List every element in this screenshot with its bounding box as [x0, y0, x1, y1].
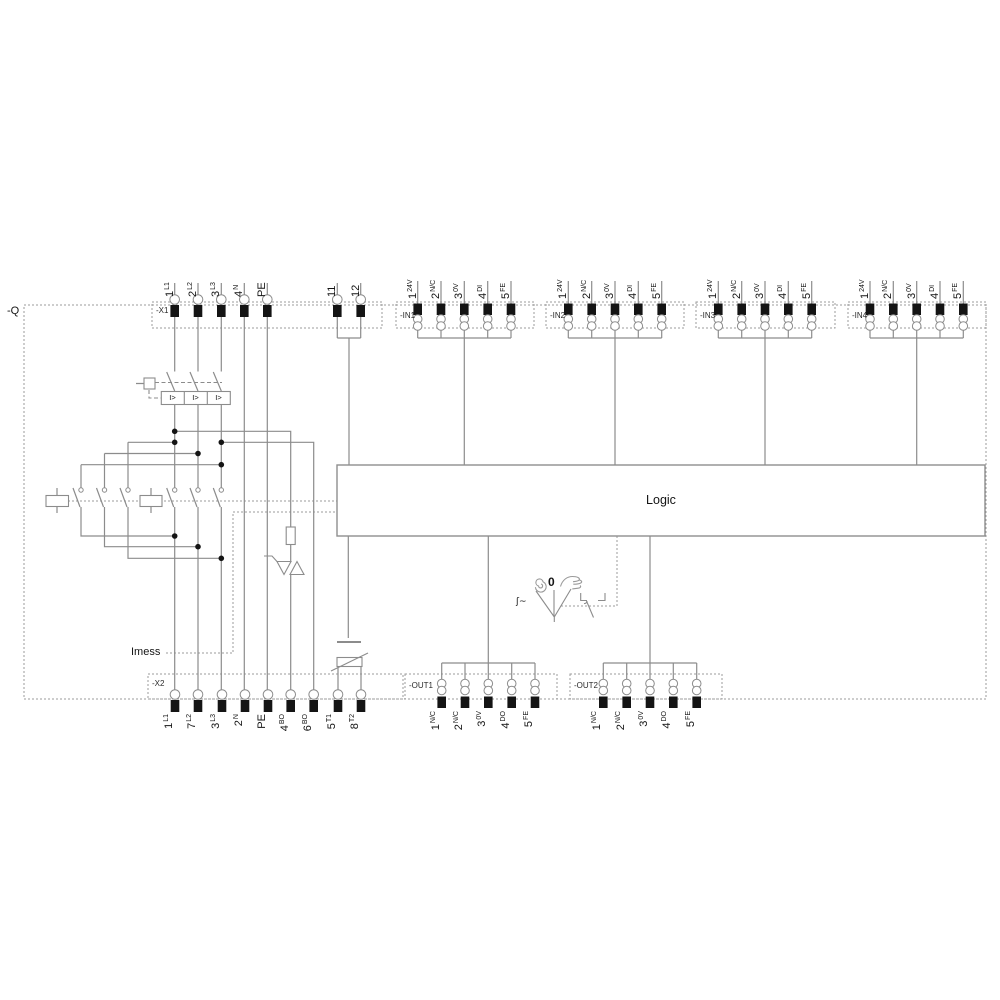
- terminal-label: 2N/C: [731, 280, 743, 299]
- terminal-circle-icon: [599, 686, 608, 695]
- terminal-label: 5FE: [500, 283, 512, 299]
- terminal-circle-icon: [531, 686, 540, 695]
- terminal-pin-icon: [217, 305, 226, 317]
- terminal-label: 5FE: [801, 283, 813, 299]
- terminal-pin-icon: [587, 304, 596, 316]
- terminal-label: 11: [326, 286, 338, 297]
- breaker-actuator-icon: [144, 378, 155, 389]
- terminal-label: 4BO: [279, 714, 291, 731]
- terminal-label: 124V: [707, 279, 719, 299]
- terminal-label: 4DI: [929, 285, 941, 299]
- terminal-label: 1L1: [163, 714, 175, 729]
- terminal-pin-icon: [437, 697, 446, 709]
- terminal-pin-icon: [286, 700, 295, 712]
- terminal-circle-icon: [263, 690, 273, 700]
- terminal-label: 5FE: [952, 283, 964, 299]
- terminal-circle-icon: [356, 690, 366, 700]
- selector-zero-label: 0: [548, 575, 555, 589]
- terminal-pin-icon: [634, 304, 643, 316]
- terminal-pin-icon: [461, 697, 470, 709]
- terminal-circle-icon: [193, 690, 203, 700]
- device-designation-label: -Q: [7, 305, 19, 317]
- terminal-label: 124V: [859, 279, 871, 299]
- terminal-label: 3L3: [210, 282, 222, 297]
- terminal-label: 1L1: [164, 282, 176, 297]
- terminal-label: 12: [350, 285, 362, 297]
- terminal-label: 7L2: [186, 714, 198, 729]
- terminal-pin-icon: [357, 700, 366, 712]
- terminal-circle-icon: [714, 322, 723, 331]
- terminal-pin-icon: [484, 697, 493, 709]
- terminal-pin-icon: [599, 697, 608, 709]
- in-block-label: -IN1: [400, 311, 415, 320]
- fuse-icon: [286, 527, 295, 545]
- terminal-pin-icon: [194, 305, 203, 317]
- terminal-circle-icon: [622, 686, 631, 695]
- logic-label: Logic: [337, 465, 985, 536]
- terminal-label: PE: [256, 282, 268, 297]
- terminal-label: 30V: [453, 283, 465, 299]
- terminal-label: 5FE: [685, 711, 697, 727]
- triac-icon: [264, 556, 304, 575]
- terminal-pin-icon: [194, 700, 203, 712]
- imess-link: [166, 512, 337, 653]
- terminal-pin-icon: [507, 697, 516, 709]
- terminal-circle-icon: [737, 322, 746, 331]
- terminal-pin-icon: [784, 304, 793, 316]
- x1-label: -X1: [156, 306, 168, 315]
- terminal-circle-icon: [461, 686, 470, 695]
- terminal-circle-icon: [564, 322, 573, 331]
- terminal-circle-icon: [507, 686, 516, 695]
- terminal-pin-icon: [669, 697, 678, 709]
- terminal-circle-icon: [240, 690, 250, 700]
- terminal-label: 5FE: [651, 283, 663, 299]
- trip-unit-cell: I>: [161, 393, 184, 402]
- terminal-label: 3L3: [210, 714, 222, 729]
- terminal-label: 4N: [233, 285, 245, 297]
- terminal-circle-icon: [217, 690, 227, 700]
- schematic-canvas: -Q Logic Imess I> I> I> 0 ʃ~ 1L12L23L34N…: [0, 0, 1000, 1000]
- terminal-label: 30V: [638, 711, 650, 727]
- selector-logic-link: [560, 536, 617, 606]
- terminal-circle-icon: [692, 686, 701, 695]
- terminal-label: 5T1: [326, 714, 338, 729]
- terminal-circle-icon: [912, 322, 921, 331]
- out-block-label: -OUT1: [409, 681, 433, 690]
- terminal-circle-icon: [483, 322, 492, 331]
- terminal-pin-icon: [692, 697, 701, 709]
- x2-label: -X2: [152, 679, 164, 688]
- terminal-pin-icon: [657, 304, 666, 316]
- contactor-coil-2-icon: [140, 496, 162, 507]
- terminal-pin-icon: [263, 305, 272, 317]
- terminal-circle-icon: [634, 322, 643, 331]
- terminal-circle-icon: [889, 322, 898, 331]
- terminal-pin-icon: [622, 697, 631, 709]
- terminal-circle-icon: [437, 322, 446, 331]
- terminal-circle-icon: [507, 322, 516, 331]
- terminal-circle-icon: [170, 690, 180, 700]
- terminal-pin-icon: [761, 304, 770, 316]
- selector-contact-icon: [581, 593, 605, 618]
- terminal-circle-icon: [611, 322, 620, 331]
- terminal-label: 8T2: [349, 714, 361, 729]
- terminal-circle-icon: [484, 686, 493, 695]
- terminal-pin-icon: [531, 697, 540, 709]
- terminal-pin-icon: [171, 700, 180, 712]
- terminal-pin-icon: [333, 305, 342, 317]
- in-block-label: -IN3: [700, 311, 715, 320]
- terminal-pin-icon: [807, 304, 816, 316]
- terminal-label: 4DO: [500, 711, 512, 729]
- terminal-label: 6BO: [302, 714, 314, 731]
- mode-selector-icon: [535, 577, 605, 623]
- terminal-pin-icon: [714, 304, 723, 316]
- trip-unit-cell: I>: [207, 393, 230, 402]
- terminal-label: 2L2: [187, 282, 199, 297]
- terminal-circle-icon: [587, 322, 596, 331]
- terminal-label: 30V: [754, 283, 766, 299]
- terminal-label: 2N/C: [615, 711, 627, 730]
- terminal-label: 4DI: [777, 285, 789, 299]
- terminal-pin-icon: [507, 304, 516, 316]
- terminal-circle-icon: [866, 322, 875, 331]
- terminal-pin-icon: [334, 700, 343, 712]
- terminal-circle-icon: [309, 690, 319, 700]
- terminal-pin-icon: [611, 304, 620, 316]
- manual-hand-icon: [561, 577, 582, 589]
- terminal-label: 4DI: [627, 285, 639, 299]
- terminal-label: 124V: [407, 279, 419, 299]
- terminal-pin-icon: [240, 305, 249, 317]
- symbols: [46, 378, 362, 667]
- terminal-pin-icon: [959, 304, 968, 316]
- terminal-label: 2N/C: [453, 711, 465, 730]
- terminal-pin-icon: [936, 304, 945, 316]
- terminal-pin-icon: [737, 304, 746, 316]
- terminal-label: 4DI: [477, 285, 489, 299]
- terminal-pin-icon: [309, 700, 318, 712]
- terminal-circle-icon: [646, 686, 655, 695]
- terminal-pin-icon: [460, 304, 469, 316]
- terminal-pin-icon: [889, 304, 898, 316]
- terminal-circle-icon: [437, 686, 446, 695]
- terminal-circle-icon: [784, 322, 793, 331]
- terminal-label: 124V: [557, 279, 569, 299]
- terminal-pin-icon: [437, 304, 446, 316]
- terminal-circle-icon: [959, 322, 968, 331]
- terminal-label: 30V: [906, 283, 918, 299]
- terminal-label: 30V: [604, 283, 616, 299]
- terminal-pin-icon: [218, 700, 227, 712]
- terminal-circle-icon: [286, 690, 296, 700]
- wires: [57, 283, 361, 690]
- terminal-label: 2N/C: [581, 280, 593, 299]
- terminal-label: 1N/C: [430, 711, 442, 730]
- terminal-pin-icon: [241, 700, 250, 712]
- terminal-circle-icon: [761, 322, 770, 331]
- contactor-coil-1-icon: [46, 496, 69, 507]
- in-block-label: -IN2: [550, 311, 565, 320]
- terminal-label: PE: [256, 714, 268, 729]
- terminal-label: 2N: [233, 714, 245, 726]
- terminal-pin-icon: [170, 305, 179, 317]
- terminal-circle-icon: [333, 690, 343, 700]
- terminal-pin-icon: [646, 697, 655, 709]
- terminal-pin-icon: [564, 304, 573, 316]
- terminal-pin-icon: [483, 304, 492, 316]
- auto-reset-icon: [535, 579, 546, 592]
- terminal-circle-icon: [669, 686, 678, 695]
- terminal-circle-icon: [657, 322, 666, 331]
- terminal-circle-icon: [807, 322, 816, 331]
- selector-signal-label: ʃ~: [516, 597, 527, 607]
- terminal-pin-icon: [356, 305, 365, 317]
- terminal-pin-icon: [264, 700, 273, 712]
- terminal-label: 4DO: [661, 711, 673, 729]
- terminal-circle-icon: [936, 322, 945, 331]
- trip-unit-cell: I>: [184, 393, 207, 402]
- terminal-label: 2N/C: [882, 280, 894, 299]
- terminal-label: 30V: [476, 711, 488, 727]
- terminal-label: 2N/C: [430, 280, 442, 299]
- terminal-label: 5FE: [523, 711, 535, 727]
- imess-label: Imess: [131, 646, 160, 658]
- terminal-pin-icon: [912, 304, 921, 316]
- terminal-label: 1N/C: [591, 711, 603, 730]
- terminal-circle-icon: [460, 322, 469, 331]
- terminal-circle-icon: [413, 322, 422, 331]
- out-block-label: -OUT2: [574, 681, 598, 690]
- in-block-label: -IN4: [852, 311, 867, 320]
